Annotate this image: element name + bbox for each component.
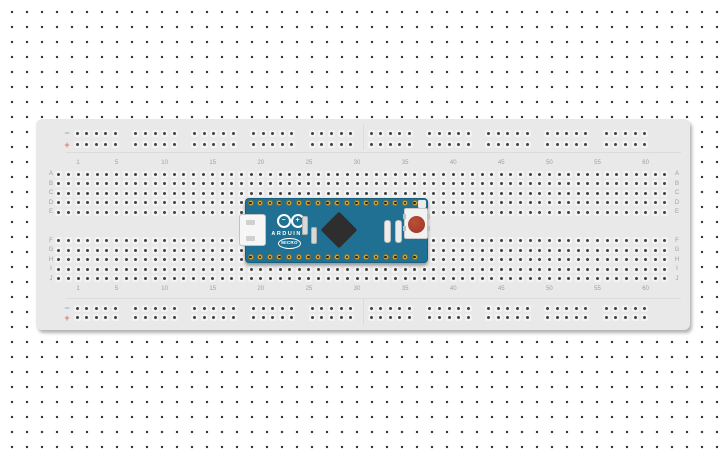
header-pin[interactable] [315, 200, 321, 206]
breadboard-hole[interactable] [228, 266, 235, 273]
breadboard-hole[interactable] [392, 275, 399, 282]
power-rail-hole[interactable] [504, 141, 511, 148]
power-rail-hole[interactable] [368, 305, 375, 312]
breadboard-hole[interactable] [517, 209, 524, 216]
breadboard-hole[interactable] [123, 199, 130, 206]
power-rail-hole[interactable] [563, 314, 570, 321]
breadboard-hole[interactable] [296, 266, 303, 273]
breadboard-hole[interactable] [517, 247, 524, 254]
breadboard-hole[interactable] [344, 171, 351, 178]
power-rail-hole[interactable] [347, 130, 354, 137]
breadboard-hole[interactable] [565, 199, 572, 206]
breadboard-hole[interactable] [152, 199, 159, 206]
breadboard-hole[interactable] [623, 180, 630, 187]
breadboard-hole[interactable] [613, 266, 620, 273]
breadboard-hole[interactable] [200, 237, 207, 244]
breadboard-hole[interactable] [604, 266, 611, 273]
breadboard-hole[interactable] [152, 237, 159, 244]
breadboard-hole[interactable] [334, 275, 341, 282]
breadboard-hole[interactable] [498, 190, 505, 197]
power-rail-hole[interactable] [544, 314, 551, 321]
breadboard-hole[interactable] [633, 237, 640, 244]
breadboard-hole[interactable] [507, 180, 514, 187]
power-rail-hole[interactable] [142, 130, 149, 137]
breadboard-hole[interactable] [546, 190, 553, 197]
breadboard-hole[interactable] [84, 199, 91, 206]
breadboard-hole[interactable] [152, 180, 159, 187]
power-rail-hole[interactable] [603, 141, 610, 148]
header-pin[interactable] [248, 254, 254, 260]
power-rail-hole[interactable] [603, 314, 610, 321]
breadboard-hole[interactable] [180, 247, 187, 254]
power-rail-hole[interactable] [582, 305, 589, 312]
power-rail-hole[interactable] [210, 314, 217, 321]
breadboard-hole[interactable] [257, 180, 264, 187]
breadboard-hole[interactable] [180, 190, 187, 197]
breadboard-hole[interactable] [546, 256, 553, 263]
breadboard-hole[interactable] [113, 190, 120, 197]
breadboard-hole[interactable] [402, 275, 409, 282]
breadboard-hole[interactable] [190, 247, 197, 254]
breadboard-hole[interactable] [498, 237, 505, 244]
header-pin[interactable] [257, 200, 263, 206]
breadboard-hole[interactable] [613, 247, 620, 254]
breadboard-hole[interactable] [248, 266, 255, 273]
breadboard-hole[interactable] [479, 266, 486, 273]
breadboard-hole[interactable] [575, 247, 582, 254]
breadboard-hole[interactable] [536, 237, 543, 244]
power-rail-hole[interactable] [514, 314, 521, 321]
breadboard-hole[interactable] [479, 209, 486, 216]
power-rail-hole[interactable] [260, 305, 267, 312]
breadboard-hole[interactable] [642, 237, 649, 244]
breadboard-hole[interactable] [113, 199, 120, 206]
power-rail-hole[interactable] [132, 314, 139, 321]
breadboard-hole[interactable] [132, 256, 139, 263]
breadboard-hole[interactable] [315, 275, 322, 282]
breadboard-hole[interactable] [498, 171, 505, 178]
breadboard-hole[interactable] [536, 199, 543, 206]
power-rail-hole[interactable] [368, 130, 375, 137]
breadboard-hole[interactable] [354, 275, 361, 282]
breadboard-hole[interactable] [633, 171, 640, 178]
breadboard-hole[interactable] [75, 190, 82, 197]
breadboard-hole[interactable] [325, 275, 332, 282]
breadboard-hole[interactable] [430, 199, 437, 206]
power-rail-hole[interactable] [436, 305, 443, 312]
breadboard-hole[interactable] [517, 266, 524, 273]
power-rail-hole[interactable] [641, 314, 648, 321]
breadboard-hole[interactable] [623, 190, 630, 197]
power-rail-hole[interactable] [396, 130, 403, 137]
breadboard-hole[interactable] [228, 171, 235, 178]
power-rail-hole[interactable] [260, 130, 267, 137]
power-rail-hole[interactable] [191, 314, 198, 321]
header-pin[interactable] [334, 254, 340, 260]
breadboard-hole[interactable] [642, 256, 649, 263]
breadboard-hole[interactable] [132, 275, 139, 282]
breadboard-hole[interactable] [488, 190, 495, 197]
power-rail-hole[interactable] [201, 314, 208, 321]
breadboard-hole[interactable] [440, 209, 447, 216]
power-rail-hole[interactable] [191, 305, 198, 312]
power-rail-hole[interactable] [112, 141, 119, 148]
breadboard-hole[interactable] [556, 237, 563, 244]
breadboard-hole[interactable] [633, 180, 640, 187]
breadboard-hole[interactable] [450, 266, 457, 273]
power-rail-hole[interactable] [436, 130, 443, 137]
breadboard-hole[interactable] [507, 275, 514, 282]
header-pin[interactable] [354, 254, 360, 260]
breadboard-hole[interactable] [623, 247, 630, 254]
breadboard-hole[interactable] [190, 209, 197, 216]
breadboard-hole[interactable] [575, 171, 582, 178]
power-rail-hole[interactable] [495, 305, 502, 312]
power-rail-hole[interactable] [622, 141, 629, 148]
power-rail-hole[interactable] [544, 130, 551, 137]
breadboard-hole[interactable] [430, 190, 437, 197]
power-rail-hole[interactable] [230, 130, 237, 137]
breadboard-hole[interactable] [132, 247, 139, 254]
breadboard-hole[interactable] [575, 190, 582, 197]
breadboard-hole[interactable] [171, 180, 178, 187]
breadboard-hole[interactable] [315, 266, 322, 273]
power-rail-hole[interactable] [612, 141, 619, 148]
header-pin[interactable] [286, 254, 292, 260]
power-rail-hole[interactable] [318, 130, 325, 137]
header-pin[interactable] [383, 254, 389, 260]
breadboard-hole[interactable] [652, 237, 659, 244]
breadboard-hole[interactable] [440, 199, 447, 206]
breadboard-hole[interactable] [488, 247, 495, 254]
breadboard-hole[interactable] [132, 237, 139, 244]
power-rail-hole[interactable] [641, 141, 648, 148]
power-rail-hole[interactable] [171, 314, 178, 321]
breadboard-hole[interactable] [498, 247, 505, 254]
breadboard-hole[interactable] [594, 247, 601, 254]
breadboard-hole[interactable] [152, 247, 159, 254]
breadboard-hole[interactable] [257, 171, 264, 178]
breadboard-hole[interactable] [238, 275, 245, 282]
breadboard-hole[interactable] [642, 199, 649, 206]
breadboard-hole[interactable] [103, 190, 110, 197]
header-pin[interactable] [412, 254, 418, 260]
power-rail-hole[interactable] [573, 130, 580, 137]
breadboard-hole[interactable] [565, 237, 572, 244]
power-rail-hole[interactable] [309, 305, 316, 312]
breadboard-hole[interactable] [84, 209, 91, 216]
breadboard-hole[interactable] [479, 275, 486, 282]
power-rail-hole[interactable] [318, 314, 325, 321]
breadboard-hole[interactable] [228, 247, 235, 254]
breadboard-hole[interactable] [334, 190, 341, 197]
breadboard-hole[interactable] [209, 247, 216, 254]
breadboard-hole[interactable] [132, 171, 139, 178]
breadboard-hole[interactable] [344, 275, 351, 282]
header-pin[interactable] [354, 200, 360, 206]
breadboard-hole[interactable] [604, 237, 611, 244]
breadboard-hole[interactable] [325, 266, 332, 273]
breadboard-hole[interactable] [65, 247, 72, 254]
power-rail-hole[interactable] [368, 141, 375, 148]
breadboard-hole[interactable] [305, 266, 312, 273]
breadboard-hole[interactable] [421, 171, 428, 178]
breadboard-hole[interactable] [113, 237, 120, 244]
breadboard-hole[interactable] [200, 256, 207, 263]
breadboard-hole[interactable] [652, 190, 659, 197]
breadboard-hole[interactable] [652, 256, 659, 263]
breadboard-hole[interactable] [575, 199, 582, 206]
power-rail-hole[interactable] [269, 141, 276, 148]
breadboard-hole[interactable] [171, 266, 178, 273]
breadboard-hole[interactable] [267, 180, 274, 187]
power-rail-hole[interactable] [622, 314, 629, 321]
breadboard-hole[interactable] [575, 266, 582, 273]
breadboard-hole[interactable] [334, 171, 341, 178]
breadboard-hole[interactable] [123, 209, 130, 216]
breadboard-hole[interactable] [142, 237, 149, 244]
power-rail-hole[interactable] [622, 130, 629, 137]
breadboard-hole[interactable] [556, 266, 563, 273]
power-rail-hole[interactable] [563, 130, 570, 137]
power-rail-hole[interactable] [161, 314, 168, 321]
breadboard-hole[interactable] [594, 237, 601, 244]
power-rail-hole[interactable] [426, 130, 433, 137]
breadboard-hole[interactable] [556, 247, 563, 254]
breadboard-hole[interactable] [584, 247, 591, 254]
breadboard-hole[interactable] [430, 266, 437, 273]
breadboard-hole[interactable] [527, 199, 534, 206]
breadboard-hole[interactable] [103, 247, 110, 254]
breadboard-hole[interactable] [132, 199, 139, 206]
breadboard-hole[interactable] [594, 266, 601, 273]
power-rail-hole[interactable] [288, 130, 295, 137]
power-rail-hole[interactable] [142, 141, 149, 148]
power-rail-hole[interactable] [455, 130, 462, 137]
power-rail-hole[interactable] [347, 141, 354, 148]
breadboard-hole[interactable] [498, 256, 505, 263]
breadboard-hole[interactable] [65, 209, 72, 216]
power-rail-hole[interactable] [132, 130, 139, 137]
breadboard-hole[interactable] [469, 180, 476, 187]
breadboard-hole[interactable] [421, 190, 428, 197]
breadboard-hole[interactable] [527, 275, 534, 282]
power-rail-hole[interactable] [338, 305, 345, 312]
breadboard-hole[interactable] [546, 237, 553, 244]
power-rail-hole[interactable] [210, 130, 217, 137]
breadboard-hole[interactable] [200, 275, 207, 282]
breadboard-hole[interactable] [248, 171, 255, 178]
breadboard-hole[interactable] [382, 190, 389, 197]
header-pin[interactable] [305, 200, 311, 206]
power-rail-hole[interactable] [171, 141, 178, 148]
power-rail-hole[interactable] [396, 305, 403, 312]
power-rail-hole[interactable] [269, 314, 276, 321]
breadboard-hole[interactable] [315, 190, 322, 197]
breadboard-hole[interactable] [286, 171, 293, 178]
breadboard-hole[interactable] [103, 275, 110, 282]
header-pin[interactable] [392, 254, 398, 260]
breadboard-hole[interactable] [633, 247, 640, 254]
power-rail-hole[interactable] [426, 314, 433, 321]
breadboard-hole[interactable] [296, 190, 303, 197]
power-rail-hole[interactable] [465, 141, 472, 148]
breadboard-hole[interactable] [84, 171, 91, 178]
breadboard-hole[interactable] [219, 209, 226, 216]
breadboard-hole[interactable] [642, 209, 649, 216]
breadboard-hole[interactable] [584, 209, 591, 216]
power-rail-hole[interactable] [328, 130, 335, 137]
reset-button-cap[interactable] [408, 216, 425, 233]
breadboard-hole[interactable] [171, 171, 178, 178]
breadboard-hole[interactable] [652, 209, 659, 216]
power-rail-hole[interactable] [269, 305, 276, 312]
breadboard-hole[interactable] [161, 256, 168, 263]
breadboard-hole[interactable] [142, 171, 149, 178]
breadboard-hole[interactable] [565, 275, 572, 282]
power-rail-hole[interactable] [161, 141, 168, 148]
breadboard-hole[interactable] [469, 171, 476, 178]
breadboard-hole[interactable] [440, 171, 447, 178]
breadboard-hole[interactable] [584, 266, 591, 273]
breadboard-hole[interactable] [209, 209, 216, 216]
breadboard-hole[interactable] [180, 256, 187, 263]
breadboard-hole[interactable] [652, 180, 659, 187]
breadboard-hole[interactable] [623, 237, 630, 244]
breadboard-hole[interactable] [623, 171, 630, 178]
breadboard-hole[interactable] [161, 275, 168, 282]
breadboard-hole[interactable] [180, 237, 187, 244]
breadboard-hole[interactable] [546, 266, 553, 273]
breadboard-hole[interactable] [633, 275, 640, 282]
power-rail-hole[interactable] [446, 130, 453, 137]
breadboard-hole[interactable] [450, 209, 457, 216]
power-rail-hole[interactable] [612, 130, 619, 137]
power-rail-hole[interactable] [554, 305, 561, 312]
breadboard-hole[interactable] [142, 247, 149, 254]
power-rail-hole[interactable] [250, 130, 257, 137]
breadboard-hole[interactable] [142, 275, 149, 282]
breadboard-hole[interactable] [546, 275, 553, 282]
breadboard-hole[interactable] [430, 237, 437, 244]
breadboard-hole[interactable] [65, 266, 72, 273]
breadboard-hole[interactable] [440, 256, 447, 263]
breadboard-hole[interactable] [161, 171, 168, 178]
breadboard-hole[interactable] [469, 190, 476, 197]
breadboard-hole[interactable] [363, 180, 370, 187]
breadboard-hole[interactable] [354, 266, 361, 273]
power-rail-hole[interactable] [465, 314, 472, 321]
power-rail-hole[interactable] [455, 314, 462, 321]
power-rail-hole[interactable] [230, 141, 237, 148]
breadboard-hole[interactable] [546, 180, 553, 187]
power-rail-hole[interactable] [132, 141, 139, 148]
breadboard-hole[interactable] [479, 190, 486, 197]
power-rail-hole[interactable] [554, 130, 561, 137]
breadboard-hole[interactable] [604, 247, 611, 254]
breadboard-hole[interactable] [556, 171, 563, 178]
breadboard-hole[interactable] [286, 275, 293, 282]
breadboard-hole[interactable] [305, 171, 312, 178]
breadboard-hole[interactable] [228, 199, 235, 206]
breadboard-hole[interactable] [219, 190, 226, 197]
breadboard-hole[interactable] [103, 171, 110, 178]
breadboard-hole[interactable] [228, 275, 235, 282]
power-rail-hole[interactable] [436, 141, 443, 148]
breadboard-hole[interactable] [450, 275, 457, 282]
breadboard-hole[interactable] [536, 247, 543, 254]
power-rail-hole[interactable] [387, 305, 394, 312]
power-rail-hole[interactable] [260, 314, 267, 321]
power-rail-hole[interactable] [377, 314, 384, 321]
breadboard-hole[interactable] [113, 171, 120, 178]
breadboard-hole[interactable] [103, 199, 110, 206]
breadboard-hole[interactable] [527, 266, 534, 273]
breadboard-hole[interactable] [190, 199, 197, 206]
breadboard-hole[interactable] [228, 256, 235, 263]
power-rail-hole[interactable] [102, 314, 109, 321]
breadboard-hole[interactable] [536, 256, 543, 263]
power-rail-hole[interactable] [132, 305, 139, 312]
breadboard-hole[interactable] [200, 266, 207, 273]
power-rail-hole[interactable] [250, 141, 257, 148]
breadboard-hole[interactable] [238, 180, 245, 187]
power-rail-hole[interactable] [524, 305, 531, 312]
breadboard-hole[interactable] [488, 237, 495, 244]
breadboard-hole[interactable] [142, 266, 149, 273]
breadboard-hole[interactable] [556, 180, 563, 187]
power-rail-hole[interactable] [171, 130, 178, 137]
breadboard-hole[interactable] [209, 256, 216, 263]
breadboard-hole[interactable] [94, 247, 101, 254]
breadboard-hole[interactable] [459, 190, 466, 197]
breadboard-hole[interactable] [488, 266, 495, 273]
breadboard-hole[interactable] [517, 237, 524, 244]
breadboard-hole[interactable] [325, 180, 332, 187]
power-rail-hole[interactable] [377, 130, 384, 137]
power-rail-hole[interactable] [288, 314, 295, 321]
breadboard-hole[interactable] [613, 171, 620, 178]
breadboard-hole[interactable] [103, 209, 110, 216]
breadboard-hole[interactable] [257, 190, 264, 197]
header-pin[interactable] [276, 200, 282, 206]
breadboard-hole[interactable] [161, 209, 168, 216]
breadboard-hole[interactable] [296, 171, 303, 178]
breadboard-hole[interactable] [200, 190, 207, 197]
power-rail-hole[interactable] [641, 305, 648, 312]
breadboard-hole[interactable] [315, 180, 322, 187]
breadboard-hole[interactable] [604, 180, 611, 187]
breadboard-hole[interactable] [623, 256, 630, 263]
breadboard-hole[interactable] [536, 190, 543, 197]
power-rail-hole[interactable] [142, 314, 149, 321]
breadboard-hole[interactable] [498, 180, 505, 187]
breadboard-hole[interactable] [479, 199, 486, 206]
breadboard-hole[interactable] [507, 237, 514, 244]
breadboard-hole[interactable] [180, 209, 187, 216]
power-rail-hole[interactable] [504, 305, 511, 312]
power-rail-hole[interactable] [112, 305, 119, 312]
power-rail-hole[interactable] [524, 130, 531, 137]
power-rail-hole[interactable] [485, 305, 492, 312]
arduino-micro-board[interactable]: − + ARDUINO MICRO [245, 198, 428, 263]
breadboard-hole[interactable] [402, 266, 409, 273]
breadboard-hole[interactable] [584, 180, 591, 187]
header-pin[interactable] [373, 254, 379, 260]
breadboard-hole[interactable] [84, 275, 91, 282]
breadboard-hole[interactable] [84, 247, 91, 254]
power-rail-hole[interactable] [152, 130, 159, 137]
